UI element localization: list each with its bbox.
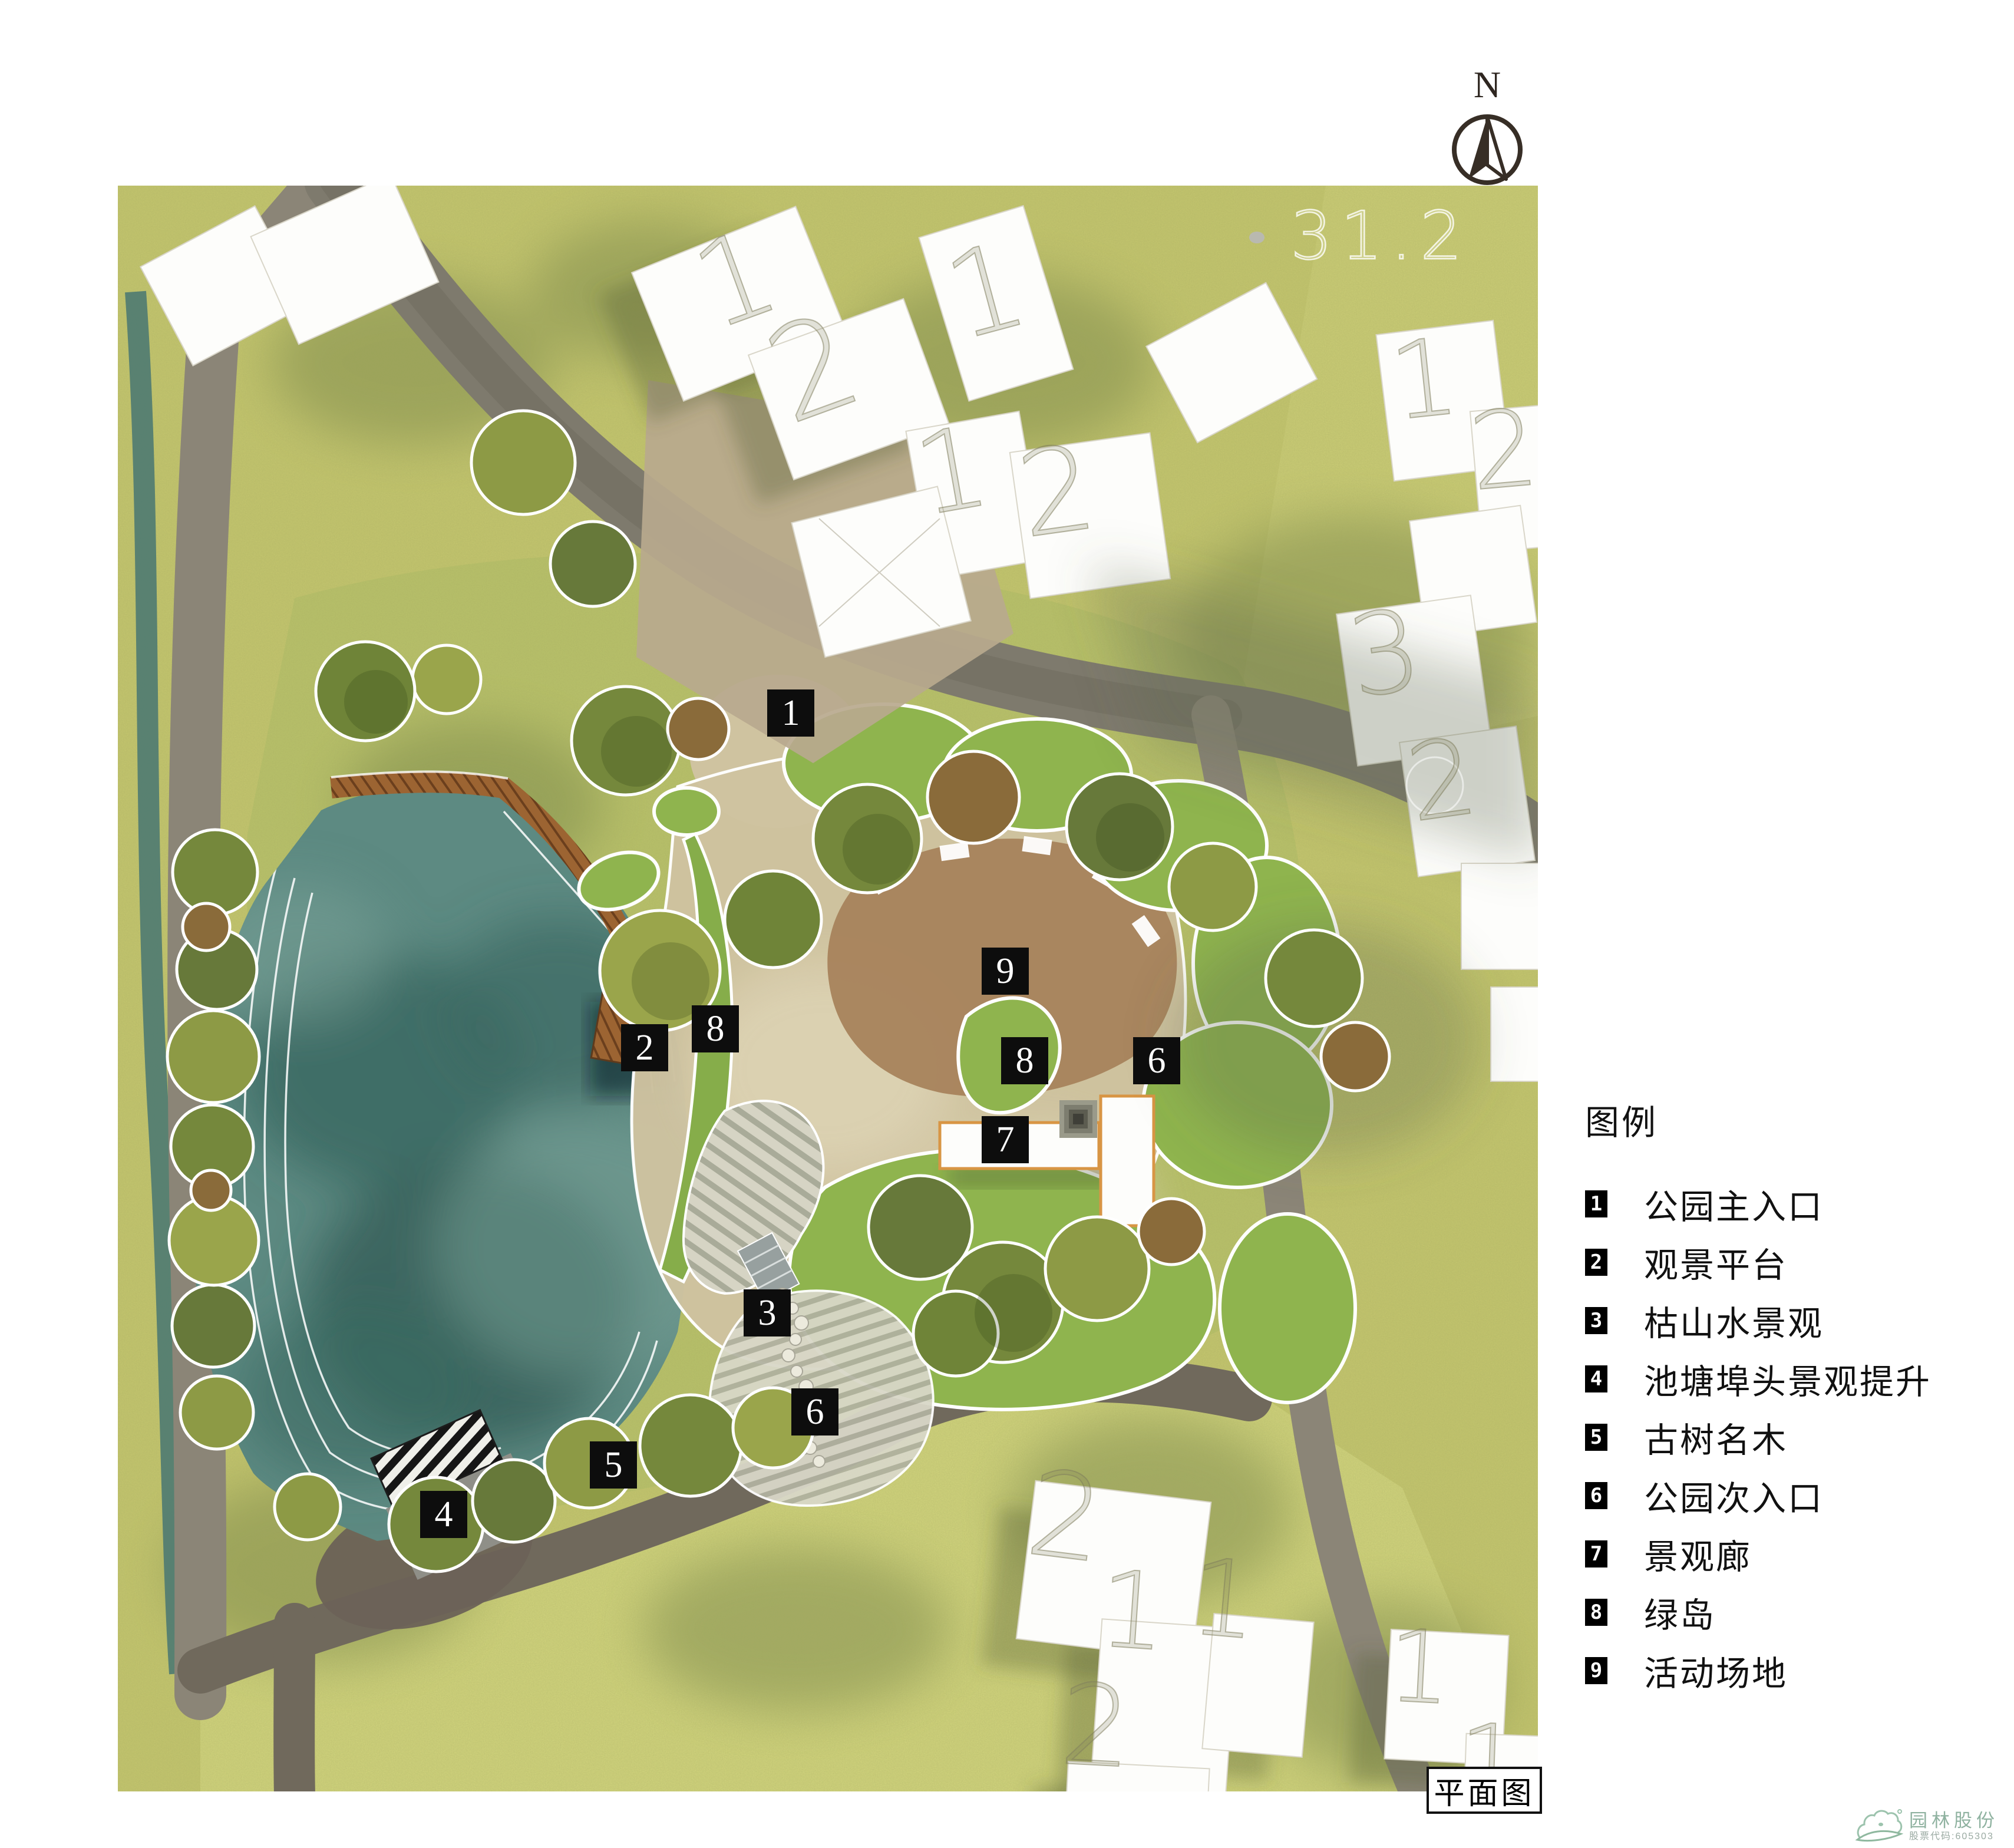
watermark-stock-code: 股票代码:605303 bbox=[1909, 1831, 1999, 1843]
legend-item-2: 2观景平台 bbox=[1585, 1245, 1998, 1279]
legend: 图例 1公园主入口 2观景平台 3枯山水景观 4池塘埠头景观提升 5古树名木 6… bbox=[1585, 1095, 1998, 1712]
legend-key-6: 6 bbox=[1585, 1482, 1607, 1509]
building-number: 1 bbox=[1095, 1556, 1170, 1667]
legend-item-8: 8绿岛 bbox=[1585, 1595, 1998, 1629]
legend-item-3: 3枯山水景观 bbox=[1585, 1303, 1998, 1338]
elevation-dot bbox=[1249, 232, 1264, 243]
north-letter: N bbox=[1434, 66, 1540, 104]
legend-item-4: 4池塘埠头景观提升 bbox=[1585, 1362, 1998, 1396]
plan-title-box: 平面图 bbox=[1427, 1767, 1542, 1814]
map-marker-2-viewing-platform: 2 bbox=[621, 1024, 668, 1071]
elevation-label: 31.2 bbox=[1290, 203, 1470, 269]
legend-item-9: 9活动场地 bbox=[1585, 1654, 1998, 1688]
legend-key-1: 1 bbox=[1585, 1190, 1607, 1217]
legend-item-5: 5古树名木 bbox=[1585, 1420, 1998, 1454]
map-marker-7-corridor: 7 bbox=[982, 1116, 1029, 1163]
legend-item-6: 6公园次入口 bbox=[1585, 1479, 1998, 1513]
map-marker-1-main-entrance: 1 bbox=[767, 689, 814, 737]
building-number: 2 bbox=[1058, 1669, 1135, 1784]
plan-title: 平面图 bbox=[1434, 1768, 1534, 1813]
map-marker-9-activity-ground: 9 bbox=[982, 948, 1029, 995]
legend-key-2: 2 bbox=[1585, 1249, 1607, 1276]
map-marker-8-green-island-center: 8 bbox=[1001, 1037, 1048, 1084]
legend-item-7: 7景观廊 bbox=[1585, 1537, 1998, 1571]
legend-key-9: 9 bbox=[1585, 1657, 1607, 1684]
legend-key-5: 5 bbox=[1585, 1424, 1607, 1451]
company-watermark: 园林股份 股票代码:605303 bbox=[1855, 1807, 1999, 1843]
watermark-name: 园林股份 bbox=[1909, 1810, 1999, 1831]
map-marker-5-ancient-trees: 5 bbox=[590, 1441, 637, 1489]
north-arrow-icon bbox=[1434, 104, 1540, 192]
map-marker-8-green-island-west: 8 bbox=[692, 1005, 739, 1052]
north-arrow: N bbox=[1434, 66, 1540, 196]
legend-key-4: 4 bbox=[1585, 1365, 1607, 1392]
building-number: 2 bbox=[1021, 1454, 1110, 1580]
map-marker-6-entrance-east: 6 bbox=[1133, 1037, 1180, 1084]
building-number: 2 bbox=[1465, 395, 1542, 506]
building-number: 1 bbox=[1186, 1544, 1262, 1655]
building-number: 1 bbox=[1385, 1616, 1454, 1719]
map-marker-6-entrance-south: 6 bbox=[791, 1388, 838, 1435]
map-marker-4-pier: 4 bbox=[420, 1491, 467, 1538]
site-plan-map: 31.2 1 2 8 9 8 6 7 3 6 5 4 1 2 1 1 2 1 2… bbox=[118, 186, 1538, 1791]
site-plan-page: 31.2 1 2 8 9 8 6 7 3 6 5 4 1 2 1 1 2 1 2… bbox=[0, 0, 2014, 1848]
legend-key-7: 7 bbox=[1585, 1540, 1607, 1567]
legend-item-1: 1公园主入口 bbox=[1585, 1187, 1998, 1221]
legend-key-8: 8 bbox=[1585, 1599, 1607, 1626]
building-number: 1 bbox=[1385, 324, 1464, 437]
legend-key-3: 3 bbox=[1585, 1307, 1607, 1334]
map-marker-3-dry-landscape: 3 bbox=[744, 1289, 791, 1336]
corridor-steps bbox=[1059, 1100, 1097, 1138]
company-logo-icon bbox=[1855, 1807, 1903, 1843]
legend-title: 图例 bbox=[1585, 1095, 1998, 1144]
